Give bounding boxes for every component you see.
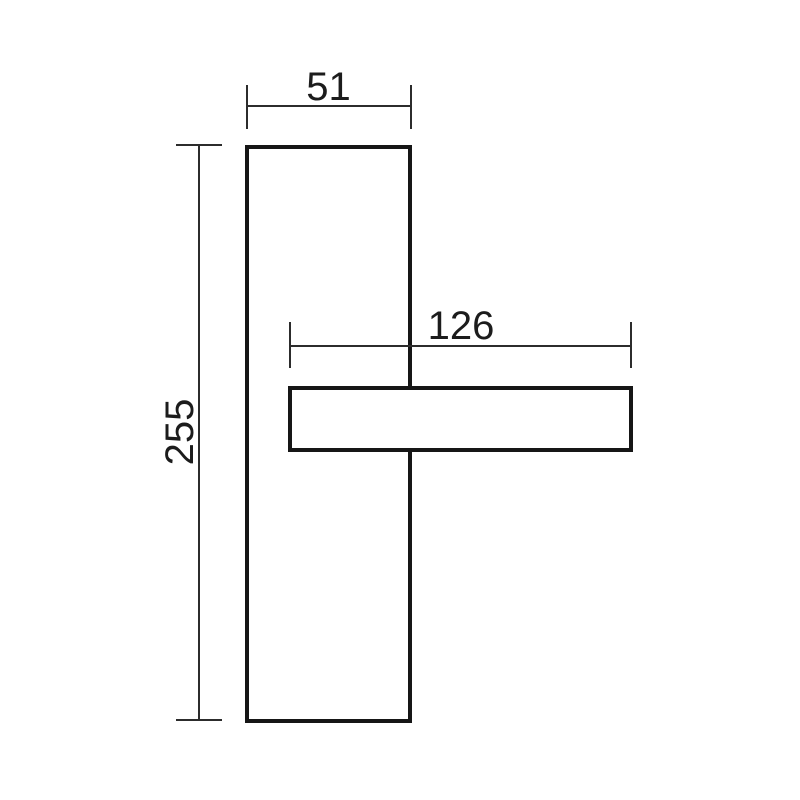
dimension-plate-height-label: 255 bbox=[160, 372, 200, 492]
lever-handle-outline bbox=[288, 386, 633, 452]
dimension-plate-width-label: 51 bbox=[245, 67, 412, 107]
dimension-handle-length-label: 126 bbox=[290, 306, 632, 346]
technical-drawing: 51 255 126 bbox=[0, 0, 800, 800]
